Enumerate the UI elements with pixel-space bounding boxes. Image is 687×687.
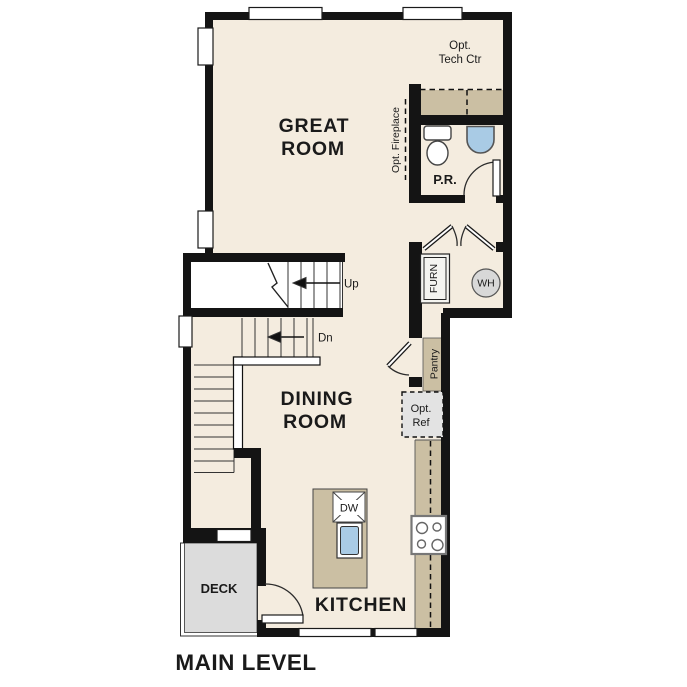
powder-sink-icon <box>467 127 494 154</box>
railing-horizontal <box>234 357 321 365</box>
wall-segment <box>441 313 450 637</box>
furnace-label: FURN <box>428 264 440 293</box>
island-sink-icon <box>337 523 362 558</box>
water-heater-label: WH <box>477 278 495 290</box>
opt-ref-label-line2: Ref <box>412 417 430 429</box>
opt-tech-ctr-label-line2: Tech Ctr <box>439 54 482 66</box>
tech-center-counter <box>420 90 503 116</box>
dining-room-label-line1: DINING <box>280 388 353 410</box>
railing-vertical <box>234 357 243 449</box>
kitchen-label: KITCHEN <box>315 594 407 616</box>
window <box>198 28 213 65</box>
dining-room-label-line2: ROOM <box>283 411 347 433</box>
wall-segment <box>183 253 345 262</box>
dishwasher-label: DW <box>340 503 359 515</box>
window <box>249 8 322 20</box>
window <box>299 629 371 637</box>
stair-upper-flight-area <box>191 262 343 308</box>
wall-segment <box>420 115 503 125</box>
window <box>217 530 251 542</box>
wall-segment <box>503 12 512 318</box>
stairs-up-label: Up <box>344 279 359 291</box>
wall-segment <box>409 84 421 203</box>
wall-segment <box>443 308 512 318</box>
door-leaf <box>262 615 303 623</box>
opt-fireplace-label: Opt. Fireplace <box>390 107 402 173</box>
window <box>198 211 213 248</box>
wall-segment <box>183 253 191 543</box>
stove-icon <box>412 516 447 554</box>
opt-tech-ctr-label-line1: Opt. <box>449 40 471 52</box>
opt-ref-label-line1: Opt. <box>411 403 432 415</box>
floor-plan-canvas: GREAT ROOM DINING ROOM KITCHEN P.R. DECK… <box>0 0 687 687</box>
door-leaf <box>493 160 500 196</box>
page-title: MAIN LEVEL <box>175 650 316 675</box>
stairs-down-label: Dn <box>318 333 333 345</box>
toilet-bowl <box>427 141 448 165</box>
window <box>179 316 192 347</box>
floor-plan-page: GREAT ROOM DINING ROOM KITCHEN P.R. DECK… <box>0 0 687 687</box>
wall-segment <box>409 377 422 387</box>
wall-segment <box>191 308 343 317</box>
wall-segment <box>257 528 266 586</box>
deck-label: DECK <box>201 581 238 596</box>
wall-segment <box>496 242 503 252</box>
great-room-label-line1: GREAT <box>279 115 350 137</box>
wall-segment <box>251 448 261 533</box>
window <box>375 629 417 637</box>
wall-segment <box>409 195 465 203</box>
pantry-label: Pantry <box>429 348 441 379</box>
window <box>403 8 462 20</box>
powder-room-label: P.R. <box>433 172 457 187</box>
great-room-label-line2: ROOM <box>281 138 345 160</box>
toilet-tank <box>424 126 451 140</box>
